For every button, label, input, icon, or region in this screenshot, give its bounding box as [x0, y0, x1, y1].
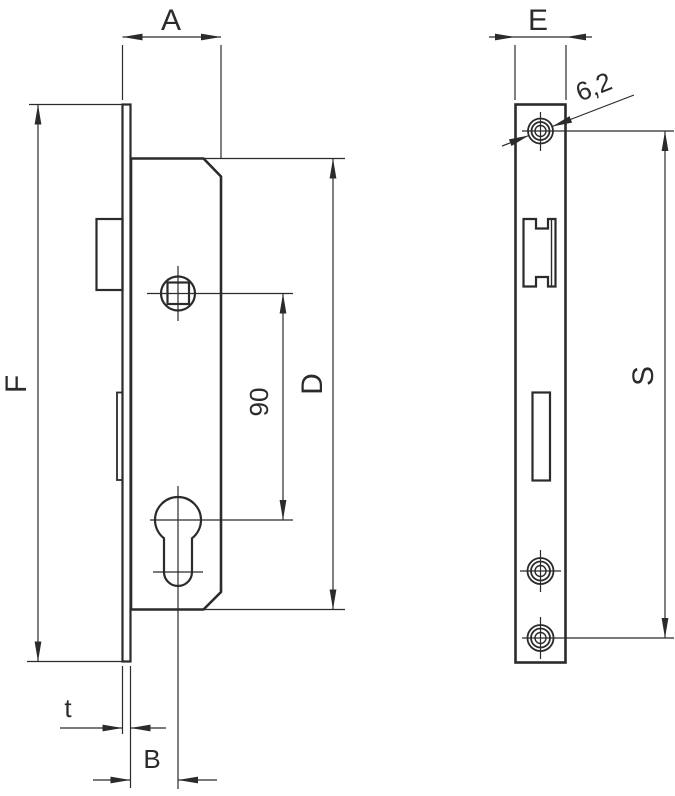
dim-label-d: D [296, 373, 329, 395]
screw-hole-middle-centerlines [520, 550, 561, 592]
dimension-d: D [296, 159, 336, 610]
latch-opening [524, 219, 556, 287]
drawing-canvas: A E F D 90 [0, 0, 675, 796]
dim-label-s: S [627, 366, 660, 386]
dimension-b: B [93, 744, 217, 783]
dimension-f: F [0, 105, 131, 662]
side-view [97, 105, 346, 790]
dim-label-hole-dia: 6,2 [571, 66, 616, 107]
dimension-90: 90 [244, 294, 286, 521]
aux-bolt-slot [533, 393, 551, 481]
dim-label-f: F [0, 375, 33, 393]
aux-bolt-side [117, 393, 123, 481]
lock-body [131, 159, 221, 610]
latch-bolt-side [97, 219, 123, 290]
screw-hole-middle [520, 550, 561, 592]
dim-label-e: E [528, 4, 548, 37]
dimension-hole-dia: 6,2 [502, 66, 634, 146]
dim-label-b: B [143, 744, 160, 774]
dimension-a: A [123, 4, 222, 158]
technical-drawing: A E F D 90 [0, 0, 675, 796]
dim-label-a: A [161, 4, 181, 37]
dim-label-90: 90 [244, 388, 274, 417]
front-view [516, 105, 566, 663]
dimensions: A E F D 90 [0, 4, 674, 788]
dim-label-t: t [64, 693, 72, 723]
faceplate-side [123, 105, 131, 662]
